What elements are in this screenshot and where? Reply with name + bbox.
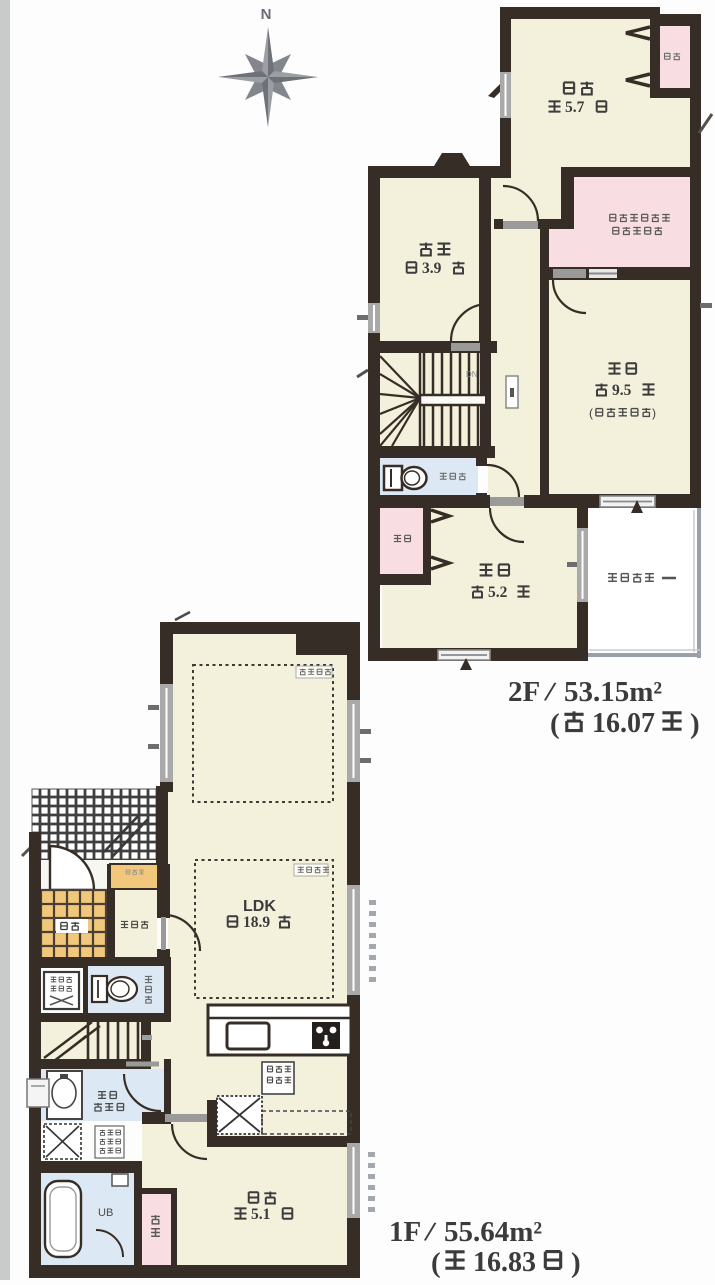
- svg-text:16.83: 16.83: [473, 1247, 536, 1278]
- svg-text:5.2: 5.2: [488, 584, 508, 601]
- svg-text:1F: 1F: [389, 1216, 421, 1248]
- svg-text:2F: 2F: [508, 676, 540, 708]
- svg-text:): ): [652, 406, 656, 420]
- svg-text:9.5: 9.5: [612, 382, 632, 399]
- svg-text:): ): [690, 708, 700, 740]
- svg-text:16.07: 16.07: [592, 708, 655, 739]
- svg-text:53.15m²: 53.15m²: [564, 676, 662, 708]
- svg-text:(: (: [431, 1247, 441, 1279]
- svg-text:DN: DN: [466, 370, 478, 379]
- svg-text:): ): [571, 1247, 581, 1279]
- svg-text:55.64m²: 55.64m²: [444, 1216, 542, 1248]
- svg-text:(: (: [589, 406, 593, 420]
- svg-text:LDK: LDK: [243, 898, 276, 915]
- svg-text:5.7: 5.7: [565, 99, 585, 116]
- svg-text:N: N: [261, 6, 272, 23]
- svg-text:UB: UB: [98, 1207, 113, 1219]
- svg-text:18.9: 18.9: [243, 914, 270, 931]
- svg-text:5.1: 5.1: [251, 1206, 270, 1223]
- svg-text:3.9: 3.9: [422, 260, 442, 277]
- svg-text:(: (: [550, 708, 560, 740]
